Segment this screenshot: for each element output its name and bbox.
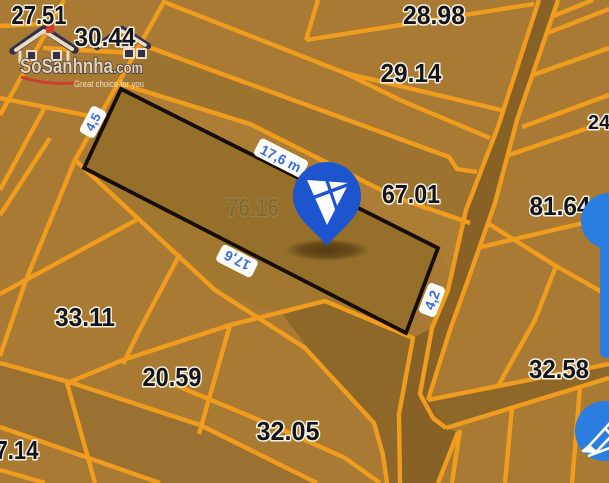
svg-text:30.44: 30.44 <box>75 22 136 52</box>
svg-text:Great choice for you: Great choice for you <box>74 79 144 90</box>
svg-text:27.51: 27.51 <box>12 0 67 30</box>
svg-text:28.98: 28.98 <box>403 0 465 30</box>
svg-text:24.1: 24.1 <box>588 112 609 134</box>
svg-text:20.59: 20.59 <box>143 362 202 392</box>
svg-text:67.01: 67.01 <box>382 179 440 209</box>
svg-text:32.05: 32.05 <box>257 416 320 446</box>
svg-text:76.16: 76.16 <box>227 194 279 222</box>
svg-text:32.58: 32.58 <box>529 354 589 384</box>
svg-text:33.11: 33.11 <box>55 302 115 332</box>
svg-text:7.14: 7.14 <box>0 435 39 465</box>
svg-text:29.14: 29.14 <box>381 58 442 88</box>
